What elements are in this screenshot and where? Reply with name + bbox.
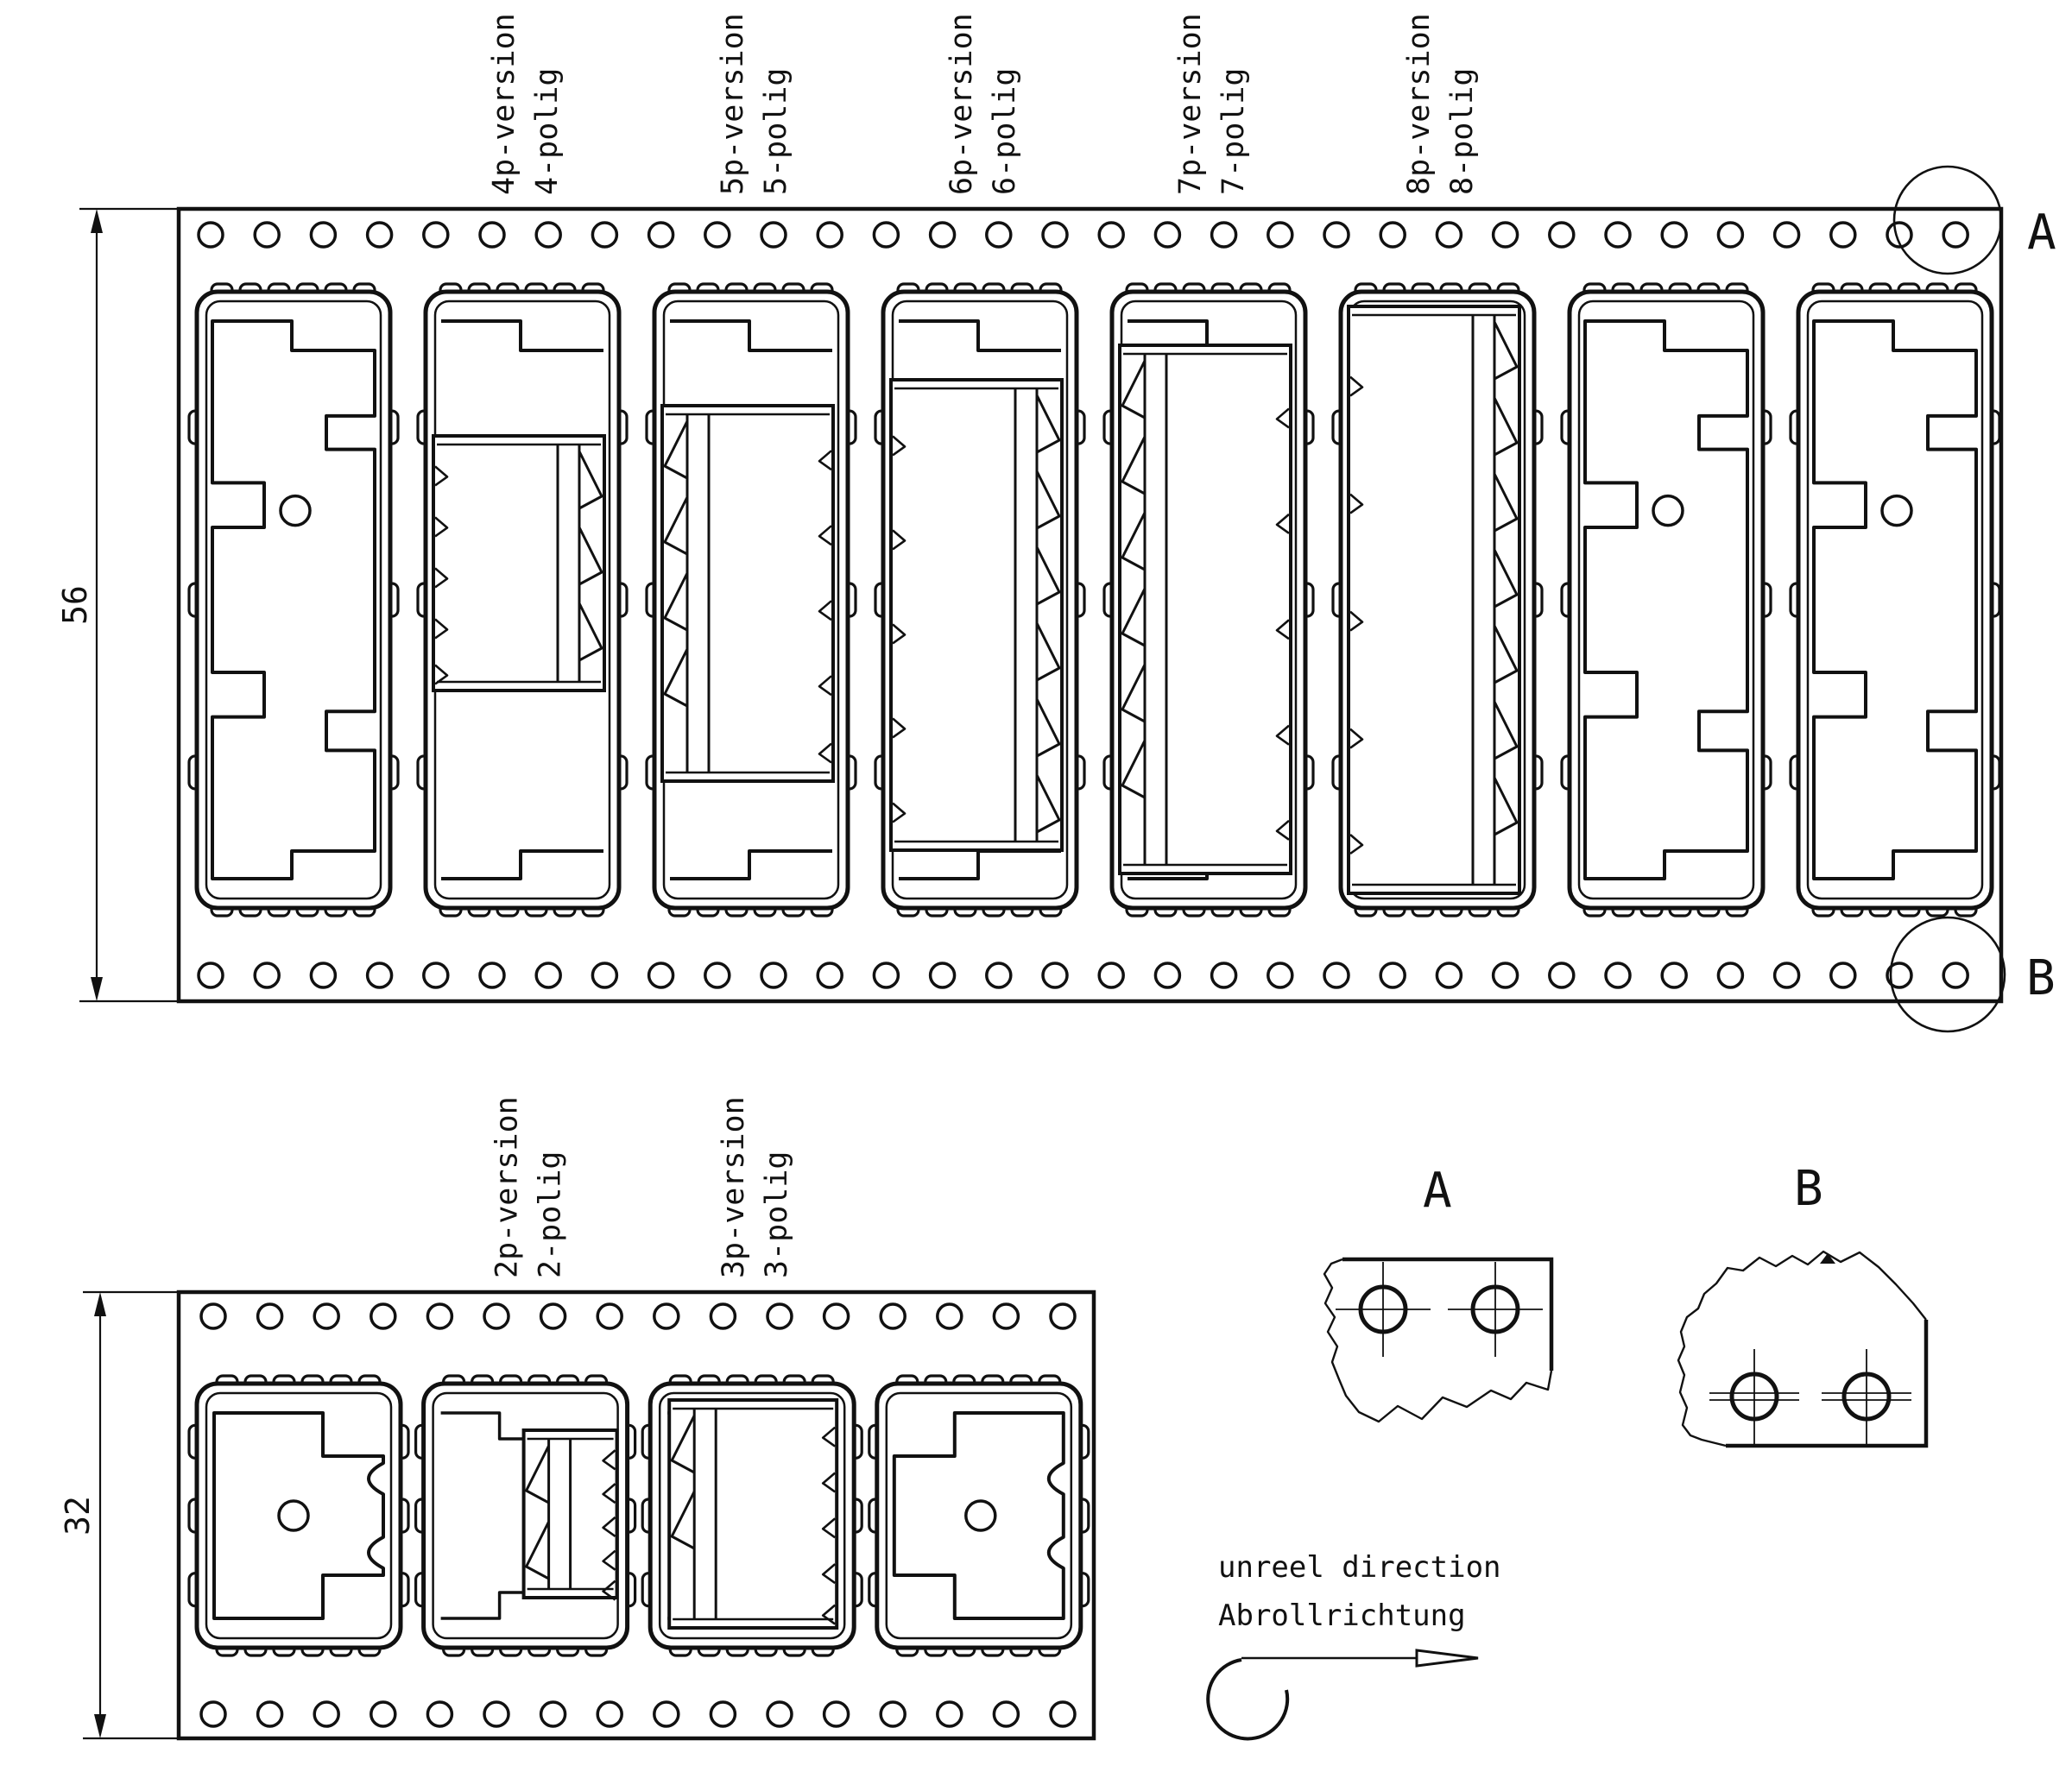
sprocket-hole bbox=[818, 963, 842, 987]
sprocket-hole bbox=[368, 223, 392, 247]
sprocket-hole bbox=[311, 963, 335, 987]
pocket-6p bbox=[875, 284, 1084, 916]
carrier-tape-drawing: 4p-version4-polig5p-version5-polig6p-ver… bbox=[0, 0, 2072, 1791]
sprocket-hole bbox=[987, 223, 1011, 247]
pocket-label-line1: 4p-version bbox=[487, 13, 521, 195]
pocket-7p bbox=[1104, 284, 1313, 916]
arrowhead-down-icon bbox=[91, 977, 103, 1001]
sprocket-hole bbox=[1606, 223, 1630, 247]
sprocket-hole bbox=[258, 1304, 282, 1328]
sprocket-hole bbox=[1775, 223, 1799, 247]
sprocket-hole bbox=[255, 223, 279, 247]
sprocket-hole bbox=[1324, 963, 1349, 987]
sprocket-hole bbox=[761, 963, 786, 987]
sprocket-hole bbox=[1550, 963, 1574, 987]
sprocket-hole bbox=[1662, 963, 1686, 987]
sprocket-hole bbox=[1051, 1304, 1075, 1328]
pocket-5p bbox=[647, 284, 856, 916]
dimension-32 bbox=[83, 1292, 180, 1738]
sprocket-hole bbox=[1831, 223, 1855, 247]
pocket-label-line2: 7-polig bbox=[1216, 67, 1251, 195]
top-pocket-labels: 4p-version4-polig5p-version5-polig6p-ver… bbox=[487, 13, 1480, 195]
pocket-2p bbox=[416, 1376, 635, 1655]
pocket-label-line2: 8-polig bbox=[1445, 67, 1480, 195]
sprocket-hole bbox=[541, 1702, 565, 1726]
carrier-tape-drawing-page: 4p-version4-polig5p-version5-polig6p-ver… bbox=[0, 0, 2072, 1791]
sprocket-hole bbox=[199, 223, 223, 247]
unreel-hook-icon bbox=[1208, 1660, 1287, 1738]
sprocket-hole bbox=[768, 1702, 792, 1726]
sprocket-hole bbox=[1437, 223, 1461, 247]
sprocket-hole bbox=[1606, 963, 1630, 987]
sprocket-hole bbox=[592, 963, 616, 987]
pocket-label-line2: 4-polig bbox=[530, 67, 565, 195]
pocket-3p bbox=[642, 1376, 862, 1655]
sprocket-hole bbox=[1662, 223, 1686, 247]
sprocket-hole bbox=[711, 1304, 735, 1328]
sprocket-hole bbox=[938, 1304, 962, 1328]
sprocket-hole bbox=[654, 1702, 679, 1726]
sprocket-hole bbox=[1943, 223, 1968, 247]
pocket-label-line2: 6-polig bbox=[988, 67, 1022, 195]
pocket-empty-left bbox=[189, 1376, 408, 1655]
arrowhead-down-icon bbox=[94, 1714, 106, 1738]
sprocket-hole bbox=[931, 963, 955, 987]
sprocket-hole bbox=[1380, 223, 1405, 247]
pocket-label-line1: 3p-version bbox=[717, 1096, 751, 1278]
sprocket-hole bbox=[705, 963, 730, 987]
detail-a-edge bbox=[1342, 1259, 1551, 1371]
sprocket-hole bbox=[592, 223, 616, 247]
sprocket-hole bbox=[541, 1304, 565, 1328]
sprocket-hole bbox=[1943, 963, 1968, 987]
sprocket-hole bbox=[1099, 963, 1123, 987]
detail-b-centerlines bbox=[1709, 1349, 1911, 1444]
dimension-56 bbox=[79, 209, 180, 1001]
sprocket-hole bbox=[597, 1702, 622, 1726]
sprocket-hole bbox=[1494, 963, 1518, 987]
pocket-empty-right bbox=[869, 1376, 1089, 1655]
sprocket-hole bbox=[824, 1304, 849, 1328]
sprocket-hole bbox=[1550, 223, 1574, 247]
sprocket-hole bbox=[424, 223, 448, 247]
detail-b-title: B bbox=[1794, 1161, 1823, 1217]
sprocket-hole bbox=[1494, 223, 1518, 247]
sprocket-hole bbox=[368, 963, 392, 987]
sprocket-hole bbox=[1268, 963, 1292, 987]
sprocket-hole bbox=[199, 963, 223, 987]
sprocket-hole bbox=[314, 1304, 338, 1328]
sprocket-hole bbox=[1043, 963, 1067, 987]
pocket-4p bbox=[418, 284, 627, 916]
detail-view-b: B bbox=[1678, 1161, 1926, 1446]
pocket-label-line1: 2p-version bbox=[490, 1096, 525, 1278]
pocket-outline bbox=[877, 1384, 1081, 1648]
sprocket-hole bbox=[994, 1702, 1018, 1726]
sprocket-hole bbox=[1718, 963, 1742, 987]
dim-56-value: 56 bbox=[56, 585, 94, 625]
detail-b-break-line bbox=[1678, 1252, 1926, 1446]
dim-32-value: 32 bbox=[59, 1496, 97, 1536]
sprocket-hole bbox=[1051, 1702, 1075, 1726]
sprocket-hole bbox=[427, 1702, 452, 1726]
sprocket-hole bbox=[874, 963, 898, 987]
detail-view-a: A bbox=[1324, 1163, 1551, 1422]
sprocket-hole bbox=[1155, 223, 1179, 247]
sprocket-hole bbox=[649, 963, 673, 987]
pocket-outline bbox=[197, 292, 390, 908]
pocket-outline bbox=[1570, 292, 1763, 908]
sprocket-hole bbox=[761, 223, 786, 247]
sprocket-hole bbox=[1212, 963, 1236, 987]
sprocket-hole bbox=[824, 1702, 849, 1726]
sprocket-hole bbox=[987, 963, 1011, 987]
sprocket-hole bbox=[1380, 963, 1405, 987]
sprocket-hole bbox=[255, 963, 279, 987]
pocket-empty bbox=[1562, 284, 1771, 916]
sprocket-hole bbox=[1831, 963, 1855, 987]
sprocket-hole bbox=[311, 223, 335, 247]
sprocket-hole bbox=[1043, 223, 1067, 247]
sprocket-hole bbox=[938, 1702, 962, 1726]
arrowhead-up-icon bbox=[94, 1292, 106, 1316]
pocket-label-line2: 3-polig bbox=[760, 1151, 794, 1278]
sprocket-hole bbox=[1099, 223, 1123, 247]
sprocket-hole bbox=[536, 223, 560, 247]
pocket-label-line1: 6p-version bbox=[944, 13, 979, 195]
sprocket-hole bbox=[874, 223, 898, 247]
sprocket-hole bbox=[705, 223, 730, 247]
sprocket-hole bbox=[818, 223, 842, 247]
sprocket-hole bbox=[424, 963, 448, 987]
sprocket-hole bbox=[1268, 223, 1292, 247]
sprocket-hole bbox=[931, 223, 955, 247]
sprocket-hole bbox=[314, 1702, 338, 1726]
pocket-label-line2: 2-polig bbox=[534, 1151, 568, 1278]
pocket-empty bbox=[189, 284, 398, 916]
pocket-outline bbox=[1798, 292, 1992, 908]
sprocket-hole bbox=[480, 223, 504, 247]
sprocket-hole bbox=[654, 1304, 679, 1328]
sprocket-hole bbox=[1718, 223, 1742, 247]
sprocket-hole bbox=[1324, 223, 1349, 247]
marker-b-letter: B bbox=[2026, 950, 2056, 1006]
sprocket-hole bbox=[1155, 963, 1179, 987]
sprocket-hole bbox=[881, 1304, 905, 1328]
sprocket-hole bbox=[484, 1304, 509, 1328]
sprocket-hole bbox=[711, 1702, 735, 1726]
pocket-label-line2: 5-polig bbox=[759, 67, 793, 195]
sprocket-hole bbox=[201, 1304, 225, 1328]
sprocket-hole bbox=[201, 1702, 225, 1726]
pocket-outline bbox=[197, 1384, 401, 1648]
pocket-label-line1: 7p-version bbox=[1173, 13, 1208, 195]
bottom-pocket-labels: 2p-version2-polig3p-version3-polig bbox=[490, 1096, 795, 1278]
pocket-label-line1: 8p-version bbox=[1402, 13, 1437, 195]
sprocket-hole bbox=[1775, 963, 1799, 987]
sprocket-hole bbox=[258, 1702, 282, 1726]
sprocket-hole bbox=[881, 1702, 905, 1726]
sprocket-hole bbox=[480, 963, 504, 987]
detail-b-edge bbox=[1726, 1320, 1926, 1446]
top-tape: 4p-version4-polig5p-version5-polig6p-ver… bbox=[56, 13, 2056, 1031]
marker-a-letter: A bbox=[2027, 205, 2056, 261]
unreel-text-en: unreel direction bbox=[1218, 1550, 1501, 1585]
detail-a-centerlines bbox=[1336, 1262, 1543, 1357]
sprocket-hole bbox=[371, 1702, 395, 1726]
sprocket-hole bbox=[994, 1304, 1018, 1328]
detail-a-title: A bbox=[1423, 1163, 1452, 1219]
sprocket-hole bbox=[1212, 223, 1236, 247]
sprocket-hole bbox=[371, 1304, 395, 1328]
pocket-label-line1: 5p-version bbox=[716, 13, 750, 195]
unreel-annotation: unreel direction Abrollrichtung bbox=[1208, 1550, 1500, 1738]
sprocket-hole bbox=[1437, 963, 1461, 987]
pocket-8p bbox=[1333, 284, 1542, 916]
unreel-text-de: Abrollrichtung bbox=[1218, 1599, 1466, 1633]
bottom-tape: 2p-version2-polig3p-version3-polig 32 bbox=[59, 1096, 1094, 1738]
sprocket-hole bbox=[536, 963, 560, 987]
unreel-arrowhead-icon bbox=[1417, 1650, 1478, 1666]
arrowhead-up-icon bbox=[91, 209, 103, 233]
detail-a-break-line bbox=[1324, 1259, 1551, 1422]
sprocket-hole bbox=[484, 1702, 509, 1726]
sprocket-hole bbox=[427, 1304, 452, 1328]
sprocket-hole bbox=[768, 1304, 792, 1328]
pocket-empty bbox=[1791, 284, 1999, 916]
sprocket-hole bbox=[649, 223, 673, 247]
sprocket-hole bbox=[597, 1304, 622, 1328]
